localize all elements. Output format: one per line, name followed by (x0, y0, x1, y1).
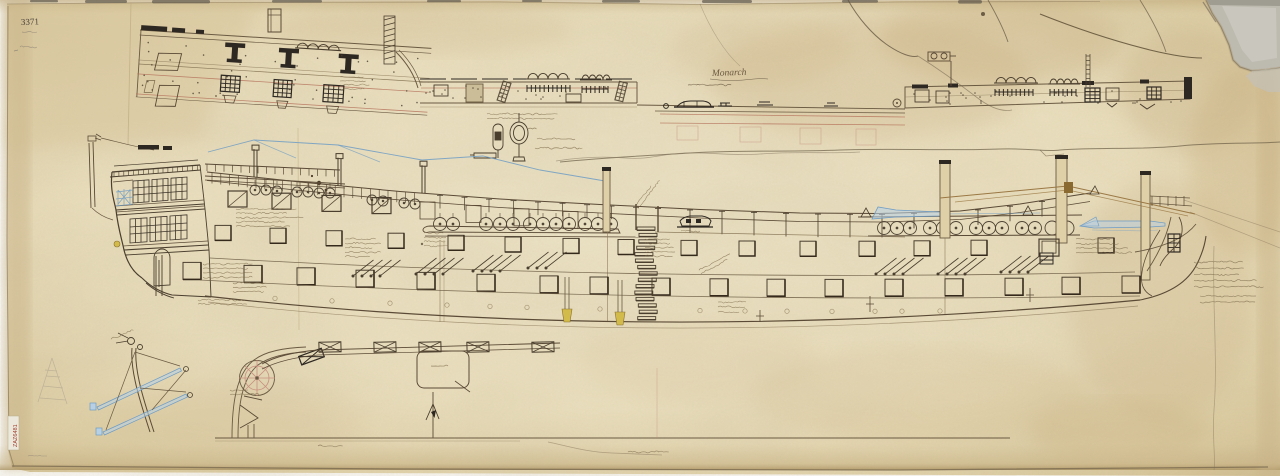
svg-text:3371: 3371 (21, 16, 39, 27)
svg-text:Monarch: Monarch (711, 68, 747, 79)
svg-text:ZAZ6481: ZAZ6481 (13, 424, 19, 447)
